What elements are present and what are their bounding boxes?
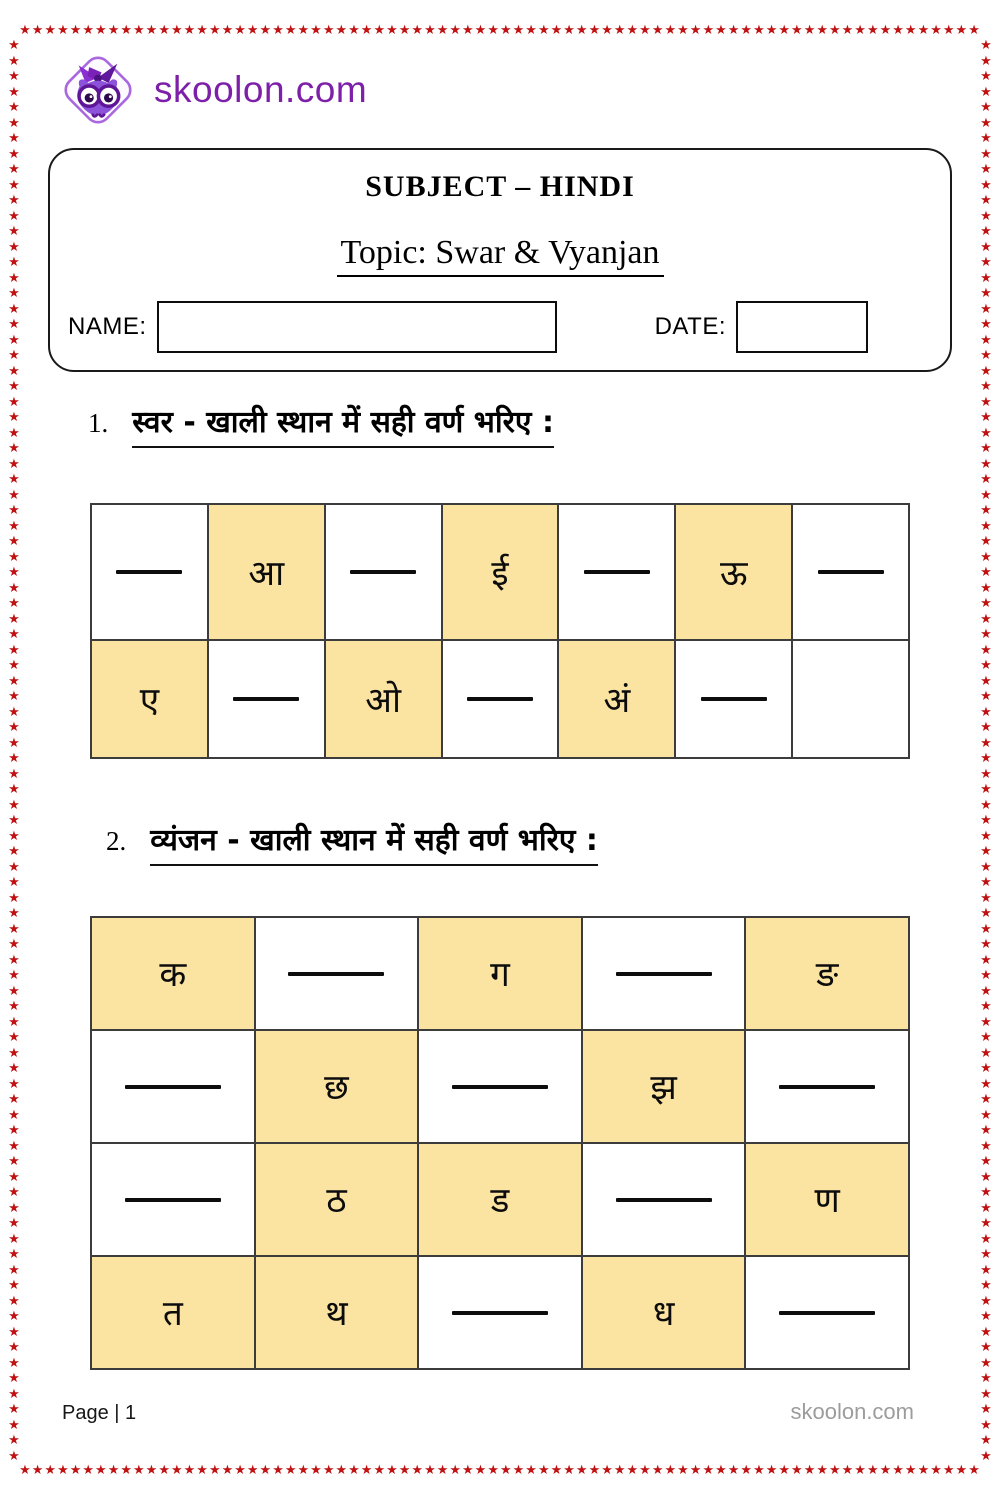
worksheet-page: ★★★★★★★★★★★★★★★★★★★★★★★★★★★★★★★★★★★★★★★★… bbox=[0, 0, 1000, 1500]
blank-cell bbox=[583, 1144, 747, 1257]
blank-cell bbox=[256, 918, 420, 1031]
fill-in-blank-line bbox=[701, 697, 767, 701]
fill-in-blank-line bbox=[233, 697, 299, 701]
empty-cell bbox=[793, 641, 910, 759]
question-2-heading: 2. व्यंजन - खाली स्थान में सही वर्ण भरिए… bbox=[106, 818, 598, 866]
letter-cell: ओ bbox=[326, 641, 443, 759]
letter-cell: अं bbox=[559, 641, 676, 759]
fill-in-blank-line bbox=[584, 570, 650, 574]
blank-cell bbox=[209, 641, 326, 759]
table-row: तथध bbox=[92, 1257, 910, 1370]
date-group: DATE: bbox=[655, 301, 868, 353]
skoolon-owl-logo-icon bbox=[54, 46, 142, 134]
blank-cell bbox=[92, 1031, 256, 1144]
blank-cell bbox=[583, 918, 747, 1031]
brand-header: skoolon.com bbox=[54, 46, 367, 134]
name-label: NAME: bbox=[68, 313, 147, 341]
letter-cell: ध bbox=[583, 1257, 747, 1370]
worksheet-header-box: SUBJECT – HINDI Topic: Swar & Vyanjan NA… bbox=[48, 148, 952, 372]
blank-cell bbox=[676, 641, 793, 759]
letter-cell: ए bbox=[92, 641, 209, 759]
table-row: ठडण bbox=[92, 1144, 910, 1257]
fill-in-blank-line bbox=[616, 1198, 712, 1202]
blank-cell bbox=[746, 1031, 910, 1144]
question-1-heading: 1. स्वर - खाली स्थान में सही वर्ण भरिए : bbox=[88, 400, 554, 448]
fill-in-blank-line bbox=[452, 1085, 548, 1089]
letter-cell: ड bbox=[419, 1144, 583, 1257]
star-border-left: ★ ★ ★ ★ ★ ★ ★ ★ ★ ★ ★ ★ ★ ★ ★ ★ ★ ★ ★ ★ … bbox=[5, 38, 23, 1462]
letter-cell: ठ bbox=[256, 1144, 420, 1257]
brand-site-name: skoolon.com bbox=[154, 69, 367, 111]
name-input-box[interactable] bbox=[157, 301, 557, 353]
vyanjan-table: कगङछझठडणतथध bbox=[90, 916, 910, 1370]
blank-cell bbox=[793, 505, 910, 641]
question-2-title: व्यंजन - खाली स्थान में सही वर्ण भरिए : bbox=[150, 818, 598, 866]
date-label: DATE: bbox=[655, 313, 726, 341]
letter-cell: ङ bbox=[746, 918, 910, 1031]
letter-cell: आ bbox=[209, 505, 326, 641]
blank-cell bbox=[326, 505, 443, 641]
blank-cell bbox=[443, 641, 560, 759]
blank-cell bbox=[92, 1144, 256, 1257]
letter-cell: ऊ bbox=[676, 505, 793, 641]
table-row: छझ bbox=[92, 1031, 910, 1144]
letter-cell: झ bbox=[583, 1031, 747, 1144]
letter-cell: छ bbox=[256, 1031, 420, 1144]
table-row: एओअं bbox=[92, 641, 910, 759]
swar-table: आईऊएओअं bbox=[90, 503, 910, 759]
blank-cell bbox=[746, 1257, 910, 1370]
fill-in-blank-line bbox=[125, 1198, 221, 1202]
page-number: Page | 1 bbox=[62, 1402, 136, 1425]
table-row: कगङ bbox=[92, 918, 910, 1031]
fill-in-blank-line bbox=[452, 1311, 548, 1315]
question-1-number: 1. bbox=[88, 408, 108, 439]
blank-cell bbox=[92, 505, 209, 641]
footer-watermark: skoolon.com bbox=[790, 1399, 914, 1425]
question-1-title: स्वर - खाली स्थान में सही वर्ण भरिए : bbox=[132, 400, 554, 448]
fill-in-blank-line bbox=[467, 697, 533, 701]
table-row: आईऊ bbox=[92, 505, 910, 641]
letter-cell: ण bbox=[746, 1144, 910, 1257]
fill-in-blank-line bbox=[116, 570, 182, 574]
letter-cell: ग bbox=[419, 918, 583, 1031]
star-border-top: ★★★★★★★★★★★★★★★★★★★★★★★★★★★★★★★★★★★★★★★★… bbox=[4, 22, 996, 39]
letter-cell: थ bbox=[256, 1257, 420, 1370]
fill-in-blank-line bbox=[125, 1085, 221, 1089]
fill-in-blank-line bbox=[779, 1311, 875, 1315]
subject-title: SUBJECT – HINDI bbox=[50, 170, 950, 204]
star-border-right: ★ ★ ★ ★ ★ ★ ★ ★ ★ ★ ★ ★ ★ ★ ★ ★ ★ ★ ★ ★ … bbox=[977, 38, 995, 1462]
star-border-bottom: ★★★★★★★★★★★★★★★★★★★★★★★★★★★★★★★★★★★★★★★★… bbox=[4, 1462, 996, 1479]
fill-in-blank-line bbox=[288, 972, 384, 976]
blank-cell bbox=[419, 1257, 583, 1370]
question-2-number: 2. bbox=[106, 826, 126, 857]
blank-cell bbox=[559, 505, 676, 641]
fill-in-blank-line bbox=[616, 972, 712, 976]
fill-in-blank-line bbox=[818, 570, 884, 574]
name-date-row: NAME: DATE: bbox=[50, 301, 950, 353]
letter-cell: ई bbox=[443, 505, 560, 641]
letter-cell: त bbox=[92, 1257, 256, 1370]
fill-in-blank-line bbox=[350, 570, 416, 574]
topic-title: Topic: Swar & Vyanjan bbox=[337, 234, 664, 277]
letter-cell: क bbox=[92, 918, 256, 1031]
fill-in-blank-line bbox=[779, 1085, 875, 1089]
date-input-box[interactable] bbox=[736, 301, 868, 353]
blank-cell bbox=[419, 1031, 583, 1144]
